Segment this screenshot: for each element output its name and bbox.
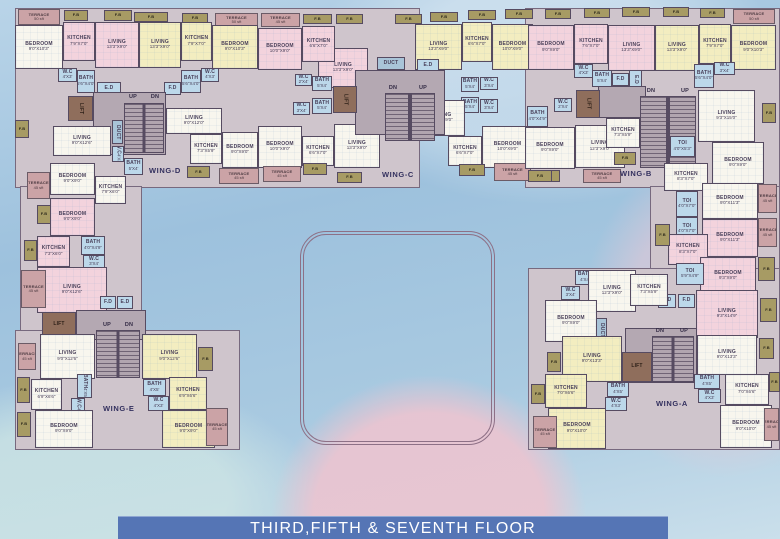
room-kitchen: KITCHEN7'0"X6'6": [725, 374, 769, 405]
room-dimensions: 2'X4': [299, 80, 309, 85]
room-dimensions: 9'0"X9'0": [562, 321, 580, 326]
room-label: F.B: [771, 380, 778, 384]
room-label: F.B: [555, 12, 562, 16]
room-dimensions: 7'3"X5'9": [614, 133, 632, 138]
wing-label-wing-b: WING-B: [620, 169, 652, 178]
room-bedroom: BEDROOM9'0"X9'0": [712, 142, 764, 184]
room-dimensions: 6'9"X6'6": [179, 394, 197, 399]
room-living: LIVING13'3"X9'0": [95, 22, 139, 68]
room-f-b: F.B: [459, 164, 485, 176]
room-kitchen: KITCHEN7'3"X5'9": [630, 274, 668, 306]
room-dimensions: 45 sft: [22, 357, 32, 361]
room-bedroom: BEDROOM9'0"X9'0": [528, 25, 574, 70]
room-dimensions: 3'X4': [566, 293, 576, 298]
room-dimensions: 5'X4': [465, 105, 475, 110]
room-dimensions: 3'X4': [720, 69, 730, 74]
room-dimensions: 5'6"X4'0": [77, 82, 95, 87]
stairs: [96, 330, 140, 378]
room-living: LIVING9'0"X12'6": [37, 267, 107, 313]
room-terrace: TERRACE45 sft: [18, 343, 36, 370]
room-living: LIVING13'3"X9'0": [139, 22, 181, 68]
room-toi: TOI4'0"X7'0": [676, 191, 698, 217]
room-label: F.B: [709, 11, 716, 15]
room-label: F.B: [346, 17, 353, 21]
room-dimensions: 5'9"X4'9": [681, 274, 699, 279]
room-bath: BATH5'X4': [312, 98, 332, 114]
room-dimensions: 7'3"X6'0": [45, 252, 63, 257]
room-f-b: F.B: [760, 298, 777, 322]
wing-label-wing-e: WING-E: [103, 404, 135, 413]
room-dimensions: 9'0"X13'3": [717, 355, 737, 360]
room-f-d: F.D: [100, 296, 116, 309]
stairs: [652, 336, 694, 382]
room-f-d: F.D: [612, 73, 629, 86]
room-kitchen: KITCHEN6'6"X7'0": [302, 26, 335, 62]
room-living: LIVING13'3"X9'0": [655, 25, 699, 71]
room-dimensions: 50 sft: [34, 17, 44, 21]
room-label: F.B: [192, 16, 199, 20]
room-f-d: F.D: [164, 82, 181, 95]
room-dimensions: 6'6"X7'0": [310, 44, 328, 49]
room-dimensions: 9'0"X12'6": [72, 141, 92, 146]
room-label: LIFT: [342, 94, 347, 105]
room-dn: DN: [653, 328, 667, 336]
room-dimensions: 13'3"X9'0": [667, 48, 687, 53]
room-dimensions: 4'X5': [702, 382, 712, 387]
room-dimensions: 4'0"X5'3": [674, 147, 692, 152]
room-bath: BATH5'6"X4'0": [694, 64, 714, 88]
room-dimensions: 9'0"X12'6": [62, 290, 82, 295]
room-living: LIVING9'0"X12'6": [40, 334, 95, 379]
room-dimensions: 10'0"X9'0": [497, 147, 517, 152]
room-label: LIFT: [585, 98, 590, 109]
room-dimensions: 13'3"X9'0": [107, 45, 127, 50]
room-f-b: F.B: [584, 8, 610, 18]
room-kitchen: KITCHEN7'3"X5'9": [606, 118, 640, 148]
room-up: UP: [677, 328, 691, 336]
room-e-d: E.D: [117, 296, 133, 309]
room-toi: TOI5'9"X4'9": [676, 263, 704, 285]
stairs: [124, 103, 164, 153]
room-living: LIVING9'0"X13'3": [697, 335, 757, 375]
room-kitchen: KITCHEN6'9"X6'6": [31, 379, 62, 410]
room-f-b: F.B: [303, 163, 327, 175]
room-w-c: W.C4'X3': [148, 396, 169, 411]
room-dimensions: 13'3"X9'0": [621, 48, 641, 53]
room-terrace: TERRACE45 sft: [21, 270, 46, 308]
room-w-c: W.C3'X4': [714, 62, 735, 75]
room-f-b: F.B: [430, 12, 458, 22]
room-terrace: TERRACE50 sft: [733, 9, 775, 24]
room-dimensions: 45 sft: [234, 176, 244, 180]
room-toi: TOI4'0"X5'3": [670, 136, 695, 157]
room-dn: DN: [122, 322, 136, 330]
room-w-c: W.C4'X3': [605, 397, 627, 411]
room-corridor: [598, 86, 646, 118]
room-dimensions: 4'X5': [613, 390, 623, 395]
room-duct: DUCT: [377, 57, 405, 70]
room-label: F.D: [616, 77, 624, 82]
room-dimensions: 6'6"X7'0": [456, 151, 474, 156]
room-f-d: F.D: [678, 294, 695, 308]
room-label: F.B: [195, 170, 202, 174]
room-label: UP: [129, 95, 137, 101]
room-f-b: F.B: [762, 103, 776, 123]
room-dimensions: 50 sft: [232, 20, 242, 24]
room-label: F.B: [41, 212, 48, 216]
room-w-c: W.C4'X3': [574, 64, 593, 78]
room-f-b: F.B: [395, 14, 422, 24]
room-label: F.B: [673, 10, 680, 14]
room-dimensions: 45 sft: [597, 176, 607, 180]
room-f-b: F.B: [700, 8, 725, 18]
room-dimensions: 6'6"X7'0": [309, 151, 327, 156]
room-bath: BATH4'0"X4'9": [527, 106, 548, 127]
room-living: LIVING9'0"X12'6": [53, 126, 111, 156]
room-up: UP: [416, 85, 430, 93]
room-label: E.D: [121, 300, 130, 305]
room-f-b: F.B: [187, 166, 210, 178]
room-lift: LIFT: [333, 86, 357, 113]
room-dimensions: 9'0"X10'3": [225, 47, 245, 52]
room-label: F.B: [441, 15, 448, 19]
room-f-b: F.B: [614, 152, 636, 165]
room-bath: BATH4'0"X4'9": [81, 236, 105, 255]
room-bath: BATH4'X5': [143, 379, 166, 396]
room-bedroom: BEDROOM9'0"X11'3": [702, 183, 758, 219]
room-kitchen: KITCHEN7'9"X7'0": [181, 22, 212, 61]
room-bedroom: BEDROOM9'0"X9'0": [222, 132, 258, 168]
room-dimensions: 7'9"X7'0": [188, 42, 206, 47]
room-up: UP: [100, 322, 114, 330]
floor-plan-page: TERRACE50 sftF.BF.BF.BF.BTERRACE50 sftTE…: [0, 0, 780, 539]
room-f-b: F.B: [468, 10, 496, 20]
room-f-b: F.B: [337, 172, 362, 183]
room-dimensions: 3'X4': [484, 106, 494, 111]
room-label: LIFT: [78, 103, 83, 114]
room-dimensions: 7'9"X7'0": [70, 42, 88, 47]
room-label: UP: [681, 89, 689, 95]
room-label: F.B: [346, 175, 353, 179]
room-bedroom: BEDROOM9'0"X9'0": [50, 163, 95, 195]
room-w-c: W.C4'X3': [112, 146, 124, 162]
room-label: F.B: [763, 267, 770, 271]
room-dimensions: 7'0"X6'6": [738, 390, 756, 395]
room-w-c: W.C3'X4': [480, 99, 498, 113]
room-label: F.D: [168, 86, 176, 91]
room-label: F.B: [763, 346, 770, 350]
room-dimensions: 9'0"X9'0": [64, 179, 82, 184]
room-kitchen: KITCHEN7'9"X6'0": [95, 176, 126, 204]
room-label: DN: [125, 323, 133, 329]
room-dimensions: 5'6"X4'0": [695, 76, 713, 81]
room-dimensions: 9'0"X9'0": [180, 429, 198, 434]
room-terrace: TERRACE45 sft: [27, 172, 50, 199]
room-w-c: W.C3'X4': [561, 286, 580, 300]
room-living: LIVING9'3"X14'9": [696, 290, 758, 338]
room-label: F.B: [314, 17, 321, 21]
room-f-b: F.B: [198, 347, 213, 371]
room-bath: BATH5'6"X4'0": [77, 70, 95, 93]
room-kitchen: KITCHEN7'3"X5'9": [190, 134, 222, 164]
room-dimensions: 9'3"X15'0": [716, 116, 736, 121]
room-f-b: F.B: [37, 205, 51, 224]
room-f-b: F.B: [15, 120, 29, 138]
room-label: BATH: [82, 374, 87, 388]
room-bath: BATH5'X4': [312, 76, 332, 91]
room-dimensions: 4'X5': [82, 388, 87, 398]
room-bath: BATH4'X5': [607, 382, 629, 397]
room-dimensions: 45 sft: [763, 199, 773, 203]
room-label: W.C: [115, 146, 120, 154]
room-dimensions: 9'0"X9'0": [541, 148, 559, 153]
room-terrace: TERRACE45 sft: [764, 408, 779, 441]
room-dimensions: 45 sft: [540, 432, 550, 436]
room-dimensions: 4'0"X7'0": [678, 204, 696, 209]
room-dn: DN: [386, 85, 400, 93]
room-dimensions: 7'9"X7'0": [706, 44, 724, 49]
room-dimensions: 9'0"X9'0": [231, 150, 249, 155]
room-label: F.B: [633, 10, 640, 14]
room-living: LIVING9'0"X12'6": [142, 334, 197, 379]
room-dimensions: 9'0"X13'3": [582, 359, 602, 364]
room-f-b: F.B: [17, 412, 31, 437]
room-label: F.B: [516, 12, 523, 16]
room-label: F.B: [73, 13, 80, 17]
room-living: LIVING13'3"X9'0": [608, 25, 655, 71]
room-label: F.B: [115, 13, 122, 17]
room-dn: DN: [148, 94, 162, 102]
room-label: DN: [656, 329, 664, 335]
room-label: E.D: [424, 63, 433, 68]
room-kitchen: KITCHEN6'9"X6'6": [169, 377, 207, 410]
title-bar: THIRD,FIFTH & SEVENTH FLOOR: [118, 516, 668, 539]
room-label: F.B: [20, 388, 27, 392]
room-dimensions: 9'0"X10'3": [29, 47, 49, 52]
room-dimensions: 6'6"X7'0": [468, 42, 486, 47]
stairs: [640, 96, 696, 168]
room-f-b: F.B: [24, 240, 37, 261]
room-dimensions: 5'X4': [317, 106, 327, 111]
courtyard-outline: [300, 231, 495, 445]
room-dimensions: 4'0"X4'9": [529, 117, 547, 122]
room-label: LIFT: [631, 364, 642, 369]
room-f-b: F.B: [622, 7, 650, 17]
room-label: F.B: [479, 13, 486, 17]
room-label: UP: [419, 86, 427, 92]
room-dimensions: 13'3"X9'0": [347, 146, 367, 151]
room-label: F.B: [537, 174, 544, 178]
room-dimensions: 9'0"X9'0": [55, 429, 73, 434]
room-dimensions: 3'X4': [297, 109, 307, 114]
room-w-c: W.C4'X3': [201, 68, 219, 82]
room-bedroom: BEDROOM9'0"X10'3": [15, 25, 63, 69]
room-dimensions: 4'X3': [116, 154, 121, 162]
room-kitchen: KITCHEN7'0"X6'6": [545, 374, 587, 408]
room-f-b: F.B: [134, 12, 168, 22]
room-dimensions: 45 sft: [29, 289, 39, 293]
room-dimensions: 7'6"X7'0": [582, 44, 600, 49]
wing-label-wing-c: WING-C: [382, 170, 414, 179]
room-terrace: TERRACE45 sft: [533, 416, 557, 448]
room-dimensions: 9'0"X11'3": [720, 238, 740, 243]
room-f-b: F.B: [531, 384, 545, 404]
room-dimensions: 45 sft: [34, 186, 44, 190]
room-label: W.C: [75, 398, 80, 408]
room-label: F.B: [766, 111, 773, 115]
room-dimensions: 7'3"X5'9": [640, 290, 658, 295]
room-label: F.B: [765, 308, 772, 312]
room-dimensions: 12'3"X9'0": [602, 291, 622, 296]
room-bedroom: BEDROOM9'0"X9'0": [50, 198, 95, 236]
room-up: UP: [678, 88, 692, 96]
room-f-b: F.B: [64, 10, 88, 21]
room-w-c: W.C2'X4': [295, 74, 312, 86]
room-f-b: F.B: [655, 224, 670, 246]
room-lift: LIFT: [576, 90, 600, 118]
room-dimensions: 9'0"X10'3": [743, 48, 763, 53]
wing-label-wing-d: WING-D: [149, 166, 181, 175]
room-label: F.B: [469, 168, 476, 172]
room-dimensions: 4'X3': [611, 404, 621, 409]
room-dimensions: 9'0"X9'0": [64, 217, 82, 222]
room-label: F.B: [27, 248, 34, 252]
room-bath: BATH5'6"X4'0": [181, 70, 201, 93]
room-dimensions: 7'0"X6'6": [557, 391, 575, 396]
room-living: LIVING9'0"X12'0": [166, 108, 222, 134]
room-dimensions: 9'0"X11'3": [720, 201, 740, 206]
room-bedroom: BEDROOM10'0"X9'0": [258, 28, 302, 70]
room-dimensions: 4'X3': [154, 404, 164, 409]
room-dimensions: 4'0"X4'9": [84, 246, 102, 251]
room-dimensions: 45 sft: [276, 20, 286, 24]
room-label: DN: [647, 89, 655, 95]
room-duct: DUCT: [112, 120, 123, 144]
room-f-b: F.B: [759, 338, 774, 359]
room-f-b: F.B: [303, 14, 332, 24]
room-label: UP: [680, 329, 688, 335]
room-bedroom: BEDROOM9'0"X11'3": [702, 219, 758, 257]
room-kitchen: KITCHEN6'6"X7'0": [448, 136, 482, 166]
wing-label-wing-a: WING-A: [656, 399, 688, 408]
room-f-b: F.B: [545, 9, 571, 19]
room-terrace: TERRACE45 sft: [758, 218, 777, 247]
room-dimensions: 45 sft: [508, 172, 518, 176]
room-kitchen: KITCHEN6'6"X7'0": [462, 22, 492, 62]
room-dimensions: 6'9"X6'6": [38, 395, 56, 400]
room-dimensions: 45 sft: [212, 427, 222, 431]
room-label: F.B: [405, 17, 412, 21]
room-up: UP: [126, 94, 140, 102]
room-dimensions: 9'0"X10'0": [567, 429, 587, 434]
room-dimensions: 13'3"X9'0": [333, 68, 353, 73]
title-text: THIRD,FIFTH & SEVENTH FLOOR: [250, 520, 536, 538]
room-label: F.B: [551, 360, 558, 364]
room-bath: BATH4'X5': [77, 374, 92, 398]
room-dimensions: 5'X4': [465, 85, 475, 90]
room-lift: LIFT: [622, 352, 652, 382]
room-terrace: TERRACE50 sft: [18, 9, 60, 25]
room-dimensions: 4'X5': [150, 388, 160, 393]
room-label: DUCT: [384, 61, 399, 66]
room-kitchen: KITCHEN7'9"X7'0": [63, 22, 95, 61]
room-dimensions: 5'X4': [597, 79, 607, 84]
room-bath: BATH4'X5': [694, 374, 720, 389]
room-dimensions: 3'X4': [484, 84, 494, 89]
room-f-b: F.B: [547, 352, 561, 372]
room-f-b: F.B: [663, 7, 689, 17]
room-bath: BATH5'X4': [461, 77, 479, 92]
room-f-b: F.B: [505, 9, 533, 19]
room-w-c: W.C3'X4': [293, 102, 310, 115]
room-dimensions: 7'3"X5'9": [197, 149, 215, 154]
room-f-b: F.B: [17, 377, 30, 403]
room-f-b: F.B: [528, 170, 552, 182]
room-dimensions: 9'0"X9'0": [542, 48, 560, 53]
room-bedroom: BEDROOM9'0"X10'3": [212, 25, 258, 69]
room-terrace: TERRACE45 sft: [261, 13, 300, 27]
room-terrace: TERRACE45 sft: [206, 408, 228, 446]
room-label: F.B: [594, 11, 601, 15]
room-bedroom: BEDROOM10'0"X9'0": [492, 24, 533, 70]
room-kitchen: KITCHEN7'3"X6'0": [37, 236, 70, 267]
room-dimensions: 13'3"X9'0": [428, 47, 448, 52]
room-kitchen: KITCHEN6'6"X7'0": [302, 136, 334, 166]
room-label: F.B: [19, 127, 26, 131]
room-dimensions: 9'0"X12'0": [184, 121, 204, 126]
room-kitchen: KITCHEN7'6"X7'0": [574, 24, 608, 64]
room-dimensions: 4'X3': [579, 71, 589, 76]
room-dimensions: 5'6"X4'0": [182, 82, 200, 87]
room-dimensions: 45 sft: [767, 425, 777, 429]
room-f-b: F.B: [758, 257, 775, 281]
room-dimensions: 9'3"X14'9": [717, 314, 737, 319]
room-label: F.B: [622, 156, 629, 160]
room-kitchen: KITCHEN7'9"X7'0": [699, 24, 731, 64]
room-w-c: W.C3'X4': [480, 77, 498, 90]
room-dimensions: 10'0"X9'0": [270, 147, 290, 152]
room-bedroom: BEDROOM9'0"X10'3": [731, 25, 776, 70]
room-dimensions: 8'3"X7'0": [677, 177, 695, 182]
room-label: DN: [151, 95, 159, 101]
room-label: F.B: [21, 422, 28, 426]
room-bedroom: BEDROOM9'0"X9'0": [35, 410, 93, 448]
room-dimensions: 9'0"X12'6": [159, 357, 179, 362]
room-bath: BATH5'X4': [592, 70, 612, 87]
room-dimensions: 50 sft: [749, 17, 759, 21]
room-label: F.B: [148, 15, 155, 19]
room-bedroom: BEDROOM10'0"X9'0": [258, 126, 302, 168]
room-lift: LIFT: [68, 96, 93, 121]
room-label: F.B: [659, 233, 666, 237]
room-dimensions: 9'0"X9'0": [729, 163, 747, 168]
room-dimensions: 4'X3': [63, 75, 73, 80]
room-dimensions: 13'3"X9'0": [150, 45, 170, 50]
room-dimensions: 7'9"X6'0": [102, 190, 120, 195]
room-dimensions: 4'X3': [205, 75, 215, 80]
room-bedroom: BEDROOM9'0"X9'0": [525, 127, 575, 169]
room-label: F.D: [104, 300, 112, 305]
room-w-c: W.C2'X4': [554, 98, 572, 112]
room-label: F.B: [312, 167, 319, 171]
room-dimensions: 5'X4': [129, 167, 139, 172]
room-label: E.D: [105, 86, 114, 91]
room-terrace: TERRACE45 sft: [263, 166, 301, 182]
room-label: DUCT: [115, 125, 120, 140]
room-dimensions: 10'0"X9'0": [270, 49, 290, 54]
room-label: UP: [103, 323, 111, 329]
room-w-c: W.C4'X3': [58, 68, 77, 82]
